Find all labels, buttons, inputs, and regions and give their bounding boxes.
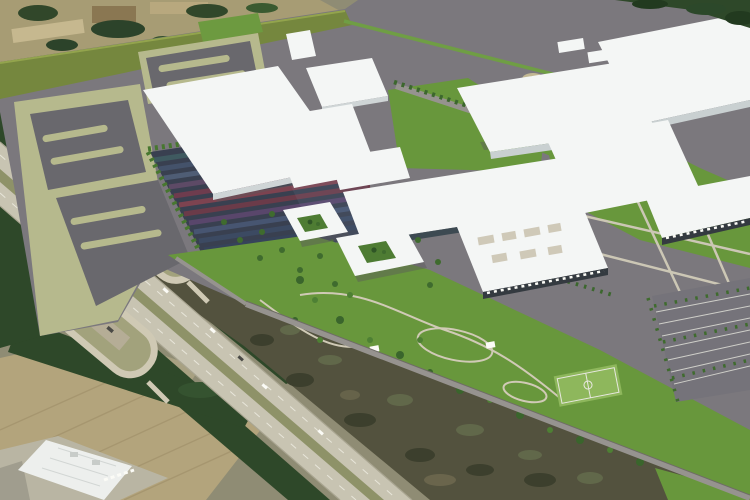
aerial-rendering: aerial-architectural-rendering <box>0 0 750 500</box>
